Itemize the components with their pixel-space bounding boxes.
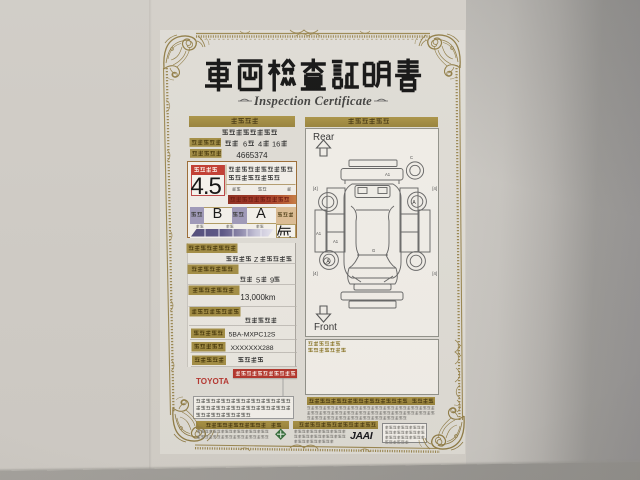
svg-text:Z: Z (254, 257, 259, 264)
svg-text:[4]: [4] (432, 271, 437, 276)
svg-text:XXXXXXX288: XXXXXXX288 (230, 345, 273, 352)
svg-text:A: A (412, 200, 416, 206)
svg-text:A1: A1 (385, 172, 391, 177)
svg-text:G: G (372, 248, 375, 253)
svg-text:4: 4 (258, 140, 262, 149)
svg-text:9: 9 (270, 276, 274, 285)
svg-text:6: 6 (243, 140, 247, 149)
svg-text:5BA-MXPC12S: 5BA-MXPC12S (229, 332, 276, 339)
svg-text:[4]: [4] (313, 271, 318, 276)
svg-text:[4]: [4] (313, 186, 318, 191)
svg-text:4665374: 4665374 (236, 151, 268, 160)
svg-text:16: 16 (272, 140, 280, 149)
svg-text:13,000km: 13,000km (240, 293, 275, 302)
svg-text:C: C (410, 155, 413, 160)
svg-text:A1: A1 (316, 231, 322, 236)
svg-text:5: 5 (256, 276, 260, 285)
svg-text:[4]: [4] (432, 186, 437, 191)
svg-text:Inspection Certificate: Inspection Certificate (253, 94, 372, 108)
svg-text:A1: A1 (333, 239, 339, 244)
